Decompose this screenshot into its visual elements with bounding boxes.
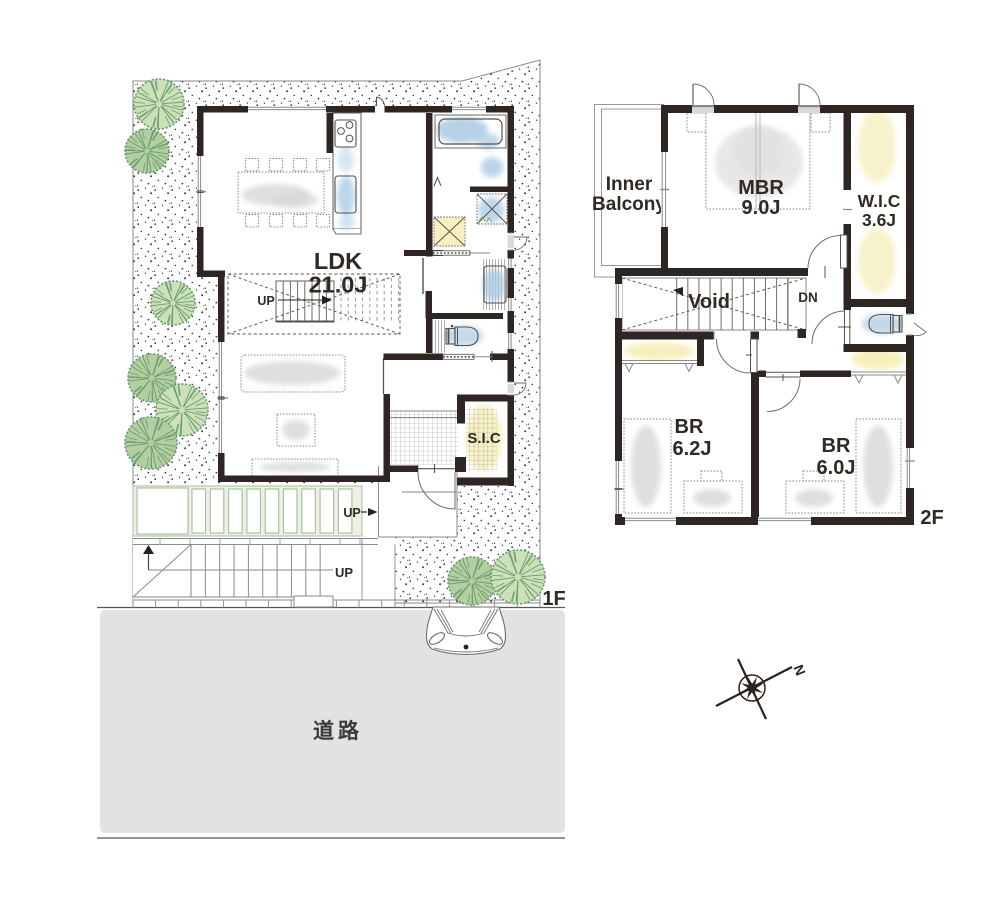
svg-text:6.2J: 6.2J: [673, 438, 712, 460]
svg-text:BR: BR: [822, 435, 851, 457]
svg-text:道路: 道路: [313, 719, 363, 743]
svg-text:UP: UP: [335, 565, 353, 580]
svg-text:Inner: Inner: [606, 174, 653, 195]
svg-text:9.0J: 9.0J: [742, 197, 781, 219]
svg-text:2F: 2F: [920, 507, 943, 529]
svg-text:6.0J: 6.0J: [817, 457, 856, 479]
svg-text:LDK: LDK: [314, 248, 362, 274]
svg-text:Balcony: Balcony: [592, 194, 666, 215]
svg-text:S.I.C: S.I.C: [467, 430, 501, 447]
svg-text:UP: UP: [257, 294, 274, 308]
svg-text:DN: DN: [798, 290, 818, 305]
svg-text:1F: 1F: [542, 588, 565, 610]
svg-text:BR: BR: [675, 416, 704, 438]
svg-text:W.I.C: W.I.C: [858, 191, 901, 211]
svg-text:MBR: MBR: [738, 177, 784, 199]
svg-text:UP: UP: [343, 506, 360, 520]
svg-text:21.0J: 21.0J: [309, 272, 368, 298]
svg-text:3.6J: 3.6J: [862, 210, 896, 230]
svg-text:Void: Void: [688, 291, 730, 313]
